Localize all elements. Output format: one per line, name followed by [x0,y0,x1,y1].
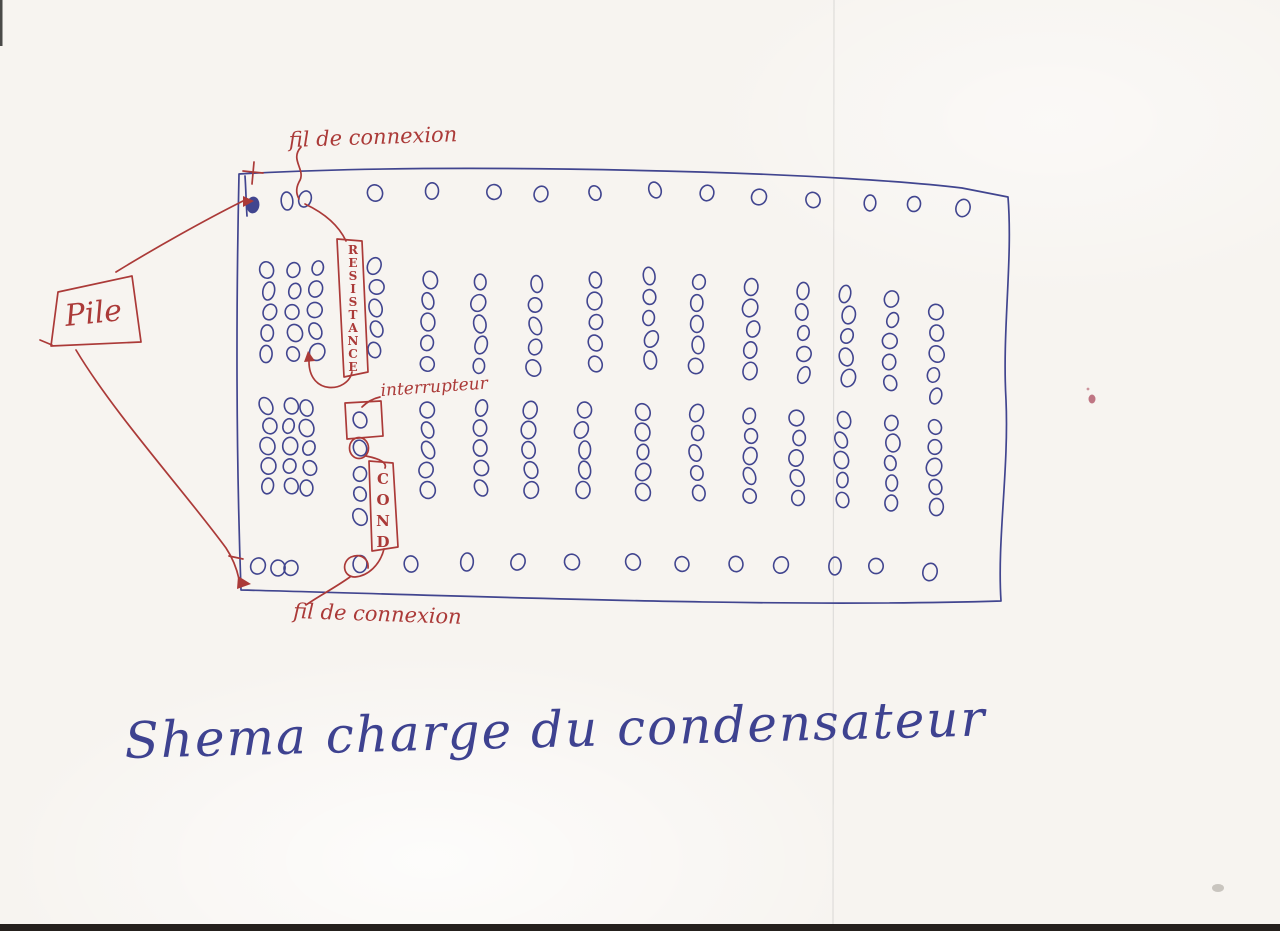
breadboard-hole [572,419,591,440]
breadboard-hole [926,418,943,437]
breadboard-hole [301,439,318,457]
breadboard-hole [420,291,435,310]
breadboard-hole [882,354,897,371]
breadboard-hole [367,298,384,319]
breadboard-hole [521,400,538,420]
breadboard-hole [924,456,945,478]
breadboard-hole [587,292,602,310]
top-wire-leader [297,147,301,199]
breadboard-hole [297,418,316,439]
breadboard-hole [929,324,944,341]
breadboard-hole [425,182,439,199]
breadboard-hole [285,322,305,344]
breadboard-hole [926,367,941,384]
breadboard-hole [530,275,543,293]
breadboard-hole [642,289,656,305]
breadboard-hole [280,192,293,211]
breadboard-hole [839,367,858,388]
breadboard-hole [521,441,537,460]
breadboard-hole [796,282,810,300]
breadboard-hole [643,350,658,370]
top-rail-holes [247,180,973,218]
breadboard-hole [522,460,540,480]
breadboard-hole [532,184,550,203]
breadboard-hole [687,402,705,423]
breadboard-hole [473,420,487,437]
breadboard-hole [468,292,488,314]
breadboard-hole [749,187,769,208]
breadboard-hole [472,458,491,478]
breadboard-hole [741,466,758,487]
breadboard-hole [742,361,759,381]
breadboard-hole [261,302,279,322]
breadboard-hole [742,446,759,466]
breadboard-hole [828,557,841,575]
breadboard-hole [692,336,704,354]
breadboard-hole [792,430,806,446]
breadboard-hole [282,437,298,455]
paper-fold-line [833,0,834,931]
switch-box [345,401,383,439]
breadboard-hole [283,477,300,496]
vertical-letter: N [376,512,390,530]
breadboard-hole [422,270,440,290]
breadboard-hole [795,365,812,385]
breadboard-hole [927,303,944,321]
capacitor-bottom-lead-loop [345,549,384,577]
breadboard-hole [788,449,805,468]
paper-smudge [1212,884,1224,892]
vertical-letter: E [348,360,357,374]
breadboard-hole [885,311,901,329]
breadboard-hole [691,484,706,502]
breadboard-hole [921,562,939,582]
ink-blot [1087,388,1096,404]
breadboard-hole [883,455,897,472]
capacitor-vertical-label: COND [376,470,390,551]
breadboard-hole [832,450,851,471]
breadboard-hole [883,414,899,431]
breadboard-hole [839,327,856,345]
negative-wire-arrowhead [237,576,251,589]
breadboard-hole [261,281,276,301]
breadboard-hole [692,426,704,441]
breadboard-hole [788,468,807,489]
breadboard-hole [586,354,604,374]
breadboard-hole [352,485,369,503]
breadboard-hole [744,278,759,296]
breadboard-hole [841,305,857,325]
breadboard-hole [886,475,898,491]
vertical-letter: S [349,269,358,283]
breadboard-hole [835,491,851,509]
breadboard-hole [699,184,716,202]
vertical-letter: T [349,308,358,322]
breadboard-hole [418,354,437,373]
breadboard-hole [642,328,661,349]
breadboard-hole [634,482,653,503]
breadboard-hole [689,464,705,481]
breadboard-hole [836,472,848,488]
resistor-vertical-label: RESISTANCE [347,243,359,374]
breadboard-hole [419,420,436,440]
breadboard-hole [420,312,436,331]
breadboard-hole [633,461,653,483]
breadboard-hole [906,196,921,213]
capacitor-charging-diagram: Pile fil de connexion RESISTANCE interru… [0,0,1280,931]
switch-label: interrupteur [380,373,489,400]
breadboard-hole [728,555,744,573]
scan-edge-left [0,0,3,46]
breadboard-hole [287,282,302,300]
vertical-letter: O [376,491,389,509]
breadboard-hole [282,457,298,474]
diagram-caption: Shema charge du condensateur [124,689,988,770]
breadboard-hole [634,422,652,442]
breadboard-hole [301,459,319,478]
breadboard-hole [419,480,437,500]
breadboard-hole [527,315,544,336]
breadboard-hole [624,552,643,572]
switch-column-holes [350,410,370,528]
positive-wire-path [116,201,243,272]
breadboard-hole [578,460,592,479]
breadboard-hole [248,556,268,577]
breadboard-hole [403,555,418,573]
breadboard-hole [472,314,487,334]
breadboard-hole [804,190,823,209]
breadboard-hole [642,310,655,326]
breadboard-hole [508,552,527,573]
breadboard-hole [369,280,384,294]
breadboard-hole [473,358,485,373]
breadboard-hole [740,297,760,319]
vertical-letter: S [349,295,358,309]
breadboard-hole [647,180,664,199]
vertical-letter: N [348,334,359,348]
breadboard-hole [742,341,758,359]
bottom-wire-label: fil de connexion [291,599,462,629]
breadboard-hole [258,260,275,279]
breadboard-hole [305,300,324,320]
breadboard-hole [419,401,435,419]
breadboard-hole [311,260,325,277]
breadboard-hole [282,396,300,416]
vertical-letter: E [348,256,357,270]
top-wire-label: fil de connexion [286,122,457,152]
breadboard-hole [261,458,276,475]
breadboard-hole [352,465,368,482]
breadboard-hole [633,401,653,422]
breadboard-hole [690,294,703,311]
vertical-letter: C [377,470,389,488]
board-outline-double-stroke [245,176,247,216]
breadboard-hole [771,555,790,575]
negative-wire-path [76,350,239,579]
breadboard-hole [368,319,385,339]
breadboard-hole [587,184,603,202]
breadboard-hole [577,402,592,418]
vertical-letter: A [347,321,358,335]
breadboard [237,169,1009,604]
plus-vertical-stroke [252,162,254,184]
breadboard-hole [832,430,850,450]
breadboard-hole [835,410,852,430]
breadboard-hole [262,417,279,435]
breadboard-hole [562,552,582,573]
breadboard-hole [838,284,852,303]
resistor-bottom-lead [309,360,352,388]
breadboard-hole [528,297,543,313]
breadboard-hole [881,373,899,392]
ink-blot-mark [1089,395,1096,404]
battery-box-tick [40,340,52,345]
breadboard-hole [281,417,295,434]
breadboard-hole [285,345,302,363]
breadboard-hole [350,506,370,527]
breadboard-hole [745,319,762,338]
breadboard-hole [837,347,855,368]
breadboard-hole [954,198,972,219]
breadboard-hole [927,478,944,497]
breadboard-hole [794,303,809,321]
breadboard-hole [579,441,591,459]
breadboard-hole [926,343,946,364]
vertical-letter: R [348,243,359,257]
breadboard-hole [486,184,502,200]
resistor-top-lead [305,204,346,241]
breadboard-hole [791,490,804,506]
breadboard-hole [588,271,603,289]
breadboard-hole [351,410,369,430]
positive-wire [116,196,254,272]
breadboard-hole [928,439,942,454]
breadboard-hole [788,409,805,427]
breadboard-hole [365,183,385,204]
breadboard-hole [928,386,944,405]
breadboard-hole [691,274,706,291]
breadboard-hole [522,480,540,499]
breadboard-hole [864,195,876,211]
breadboard-hole [691,316,704,333]
breadboard-hole [260,345,273,363]
breadboard-hole [366,341,382,359]
breadboard-hole [285,261,302,279]
breadboard-hole [474,399,489,418]
breadboard-hole [882,289,900,309]
breadboard-hole [256,395,275,417]
breadboard-hole [637,444,650,460]
breadboard-hole [642,266,656,285]
breadboard-hole [687,443,703,463]
breadboard-hole [744,428,758,444]
scanned-paper-page: Pile fil de connexion RESISTANCE interru… [0,0,1280,931]
breadboard-hole [261,325,273,341]
vertical-letter: I [350,282,356,296]
breadboard-hole [687,357,705,375]
breadboard-hole [261,477,275,495]
breadboard-hole [473,439,488,456]
breadboard-hole [306,321,324,341]
breadboard-hole [576,481,590,498]
scan-edge-bottom [0,924,1280,931]
vertical-letter: D [376,533,389,551]
vertical-letter: C [348,347,358,361]
breadboard-hole [300,480,314,496]
breadboard-hole [285,304,300,319]
negative-wire [76,350,251,589]
breadboard-hole [586,333,605,354]
breadboard-hole [282,559,300,578]
breadboard-hole [473,335,489,355]
board-outline [237,169,1009,604]
ink-blot-dot [1087,388,1090,391]
resistor-component: RESISTANCE [304,204,368,388]
breadboard-hole [885,434,900,453]
breadboard-hole [258,436,277,457]
breadboard-hole [307,279,325,299]
battery-symbol: Pile [40,276,141,346]
breadboard-hole [417,460,436,480]
breadboard-hole [868,558,883,574]
breadboard-hole [796,325,810,342]
breadboard-hole [794,344,813,363]
upper-terminal-columns [258,256,947,406]
breadboard-hole [588,313,605,331]
breadboard-hole [523,357,543,379]
breadboard-hole [674,555,691,573]
breadboard-hole [929,498,944,516]
breadboard-hole [472,478,490,499]
breadboard-hole [741,487,758,505]
breadboard-hole [420,335,435,352]
breadboard-hole [298,398,314,417]
breadboard-hole [885,495,898,511]
breadboard-hole [460,553,474,572]
breadboard-hole [527,338,544,357]
breadboard-hole [880,331,899,350]
breadboard-hole [742,407,757,425]
breadboard-hole [521,421,536,439]
breadboard-hole [474,274,486,290]
breadboard-hole [365,256,384,277]
battery-label: Pile [62,293,123,334]
breadboard-hole [419,439,437,460]
